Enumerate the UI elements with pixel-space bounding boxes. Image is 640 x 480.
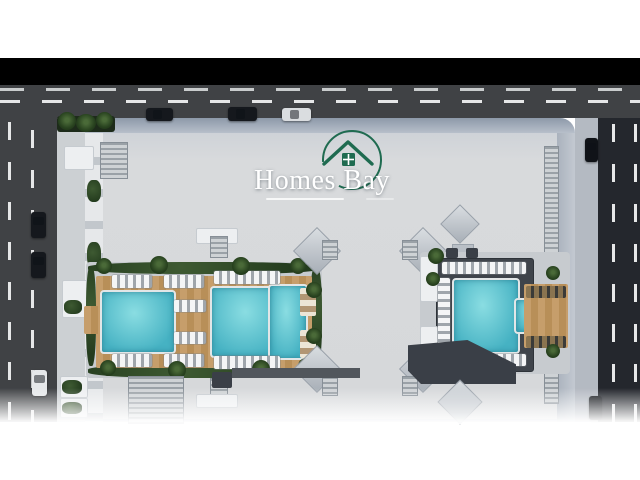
- sun-loungers: [526, 286, 566, 298]
- roof-structure: [212, 372, 232, 388]
- palm-tree: [100, 360, 116, 376]
- sun-loungers: [164, 275, 204, 288]
- roof-strip: [232, 368, 360, 378]
- rooftop-louver: [322, 240, 338, 260]
- palm-tree: [426, 272, 440, 286]
- sun-loungers: [214, 271, 280, 284]
- right-sidewalk: [575, 118, 598, 422]
- rooftop-louver: [100, 142, 128, 179]
- car: [31, 212, 46, 238]
- bottom-fade: [0, 388, 640, 424]
- roof-terrace-green: [87, 180, 101, 202]
- sun-loungers: [174, 332, 206, 344]
- palm-tree: [232, 257, 250, 275]
- palm-tree: [96, 112, 113, 129]
- roof-structure: [446, 248, 458, 258]
- palm-tree: [150, 256, 168, 274]
- palm-tree: [58, 112, 76, 130]
- sun-loungers: [442, 262, 526, 274]
- top-road-far-lane-line: [0, 88, 640, 91]
- sun-loungers: [174, 300, 206, 312]
- palm-tree: [428, 248, 444, 264]
- logo-underline: [366, 198, 394, 200]
- car: [146, 108, 173, 121]
- palm-tree: [96, 258, 112, 274]
- sun-loungers: [526, 336, 566, 348]
- car: [282, 108, 311, 121]
- rooftop-louver: [402, 240, 418, 260]
- palm-tree: [546, 266, 560, 280]
- aerial-render-image: Homes Bay: [0, 0, 640, 480]
- roof-terrace-green: [64, 300, 82, 314]
- palm-tree: [306, 282, 322, 298]
- palm-tree: [546, 344, 560, 358]
- homes-bay-logo: Homes Bay: [252, 126, 412, 200]
- palm-tree: [76, 114, 96, 132]
- roof-structure: [64, 146, 94, 170]
- right-road-lane-line: [634, 124, 637, 422]
- letterbox-bar: [0, 58, 640, 85]
- hedge: [88, 262, 320, 274]
- car: [31, 252, 46, 278]
- right-road-lane-line: [612, 124, 615, 422]
- pool-pier: [84, 306, 100, 334]
- sun-loungers: [112, 354, 152, 367]
- palm-tree: [306, 328, 322, 344]
- car: [228, 107, 257, 121]
- logo-underline: [266, 198, 344, 200]
- top-road-center-line: [0, 100, 640, 103]
- roof-structure: [466, 248, 478, 258]
- swimming-pool: [100, 290, 176, 354]
- car: [585, 138, 598, 162]
- sun-loungers: [112, 275, 152, 288]
- rooftop-louver: [210, 236, 228, 258]
- logo-wordmark: Homes Bay: [242, 165, 402, 197]
- left-road-lane-line: [8, 122, 11, 422]
- sun-loungers: [438, 278, 450, 350]
